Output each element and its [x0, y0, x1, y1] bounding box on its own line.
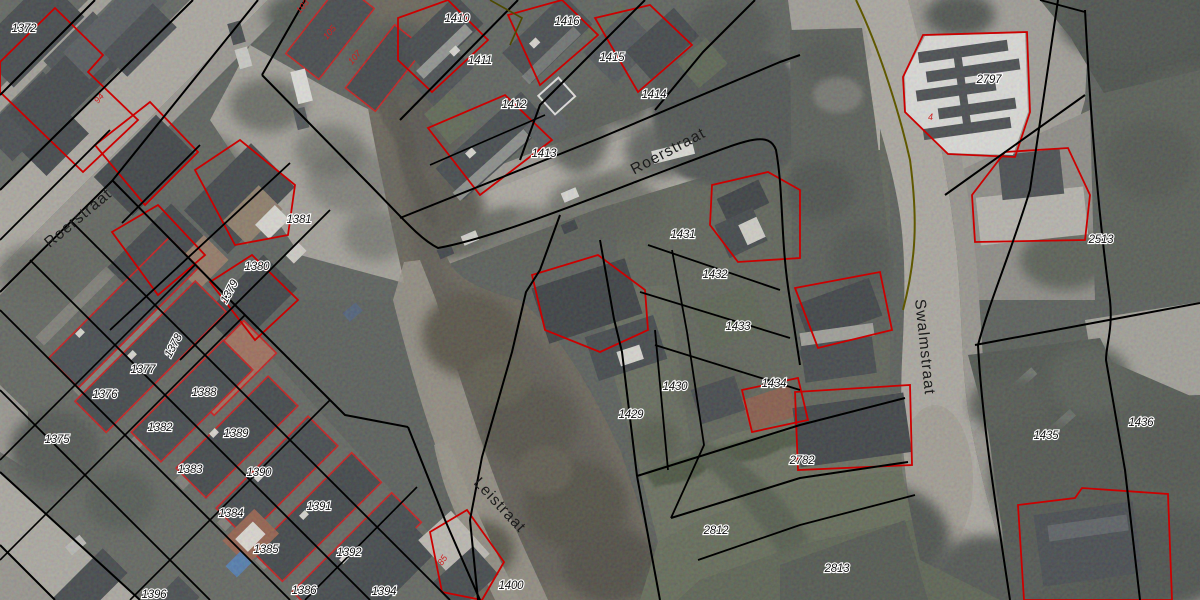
svg-text:1375: 1375 — [45, 434, 71, 446]
svg-text:1429: 1429 — [619, 409, 645, 421]
svg-text:1400: 1400 — [499, 580, 525, 592]
svg-text:1372: 1372 — [12, 23, 38, 35]
svg-text:2782: 2782 — [789, 455, 816, 467]
svg-text:1413: 1413 — [532, 148, 558, 160]
svg-text:1430: 1430 — [663, 381, 689, 393]
svg-text:1411: 1411 — [468, 55, 492, 67]
svg-text:1377: 1377 — [131, 364, 157, 376]
svg-text:1389: 1389 — [224, 428, 250, 440]
svg-text:4: 4 — [928, 112, 933, 122]
svg-text:1391: 1391 — [307, 501, 332, 513]
svg-text:1435: 1435 — [1034, 430, 1060, 442]
svg-text:1381: 1381 — [287, 214, 312, 226]
svg-text:1414: 1414 — [642, 89, 667, 101]
svg-text:2813: 2813 — [824, 563, 851, 575]
svg-text:1432: 1432 — [703, 269, 729, 281]
svg-text:1390: 1390 — [247, 467, 273, 479]
svg-text:1380: 1380 — [245, 261, 271, 273]
svg-text:1384: 1384 — [219, 508, 244, 520]
svg-text:1383: 1383 — [178, 464, 204, 476]
svg-text:1412: 1412 — [502, 99, 528, 111]
svg-text:1394: 1394 — [372, 586, 397, 598]
svg-text:1392: 1392 — [337, 547, 363, 559]
svg-text:2797: 2797 — [976, 74, 1003, 86]
svg-text:2513: 2513 — [1088, 234, 1115, 246]
svg-text:1410: 1410 — [445, 13, 471, 25]
svg-text:1434: 1434 — [762, 378, 787, 390]
svg-text:1386: 1386 — [292, 585, 318, 597]
svg-text:1385: 1385 — [254, 544, 280, 556]
svg-text:1415: 1415 — [600, 52, 626, 64]
svg-text:1382: 1382 — [148, 422, 174, 434]
svg-text:1431: 1431 — [671, 229, 696, 241]
svg-text:1376: 1376 — [93, 389, 119, 401]
svg-text:1436: 1436 — [1129, 417, 1155, 429]
svg-text:1388: 1388 — [192, 387, 218, 399]
svg-text:2812: 2812 — [703, 525, 730, 537]
svg-text:1433: 1433 — [726, 321, 752, 333]
svg-text:1416: 1416 — [555, 16, 581, 28]
svg-text:1396: 1396 — [142, 589, 168, 600]
